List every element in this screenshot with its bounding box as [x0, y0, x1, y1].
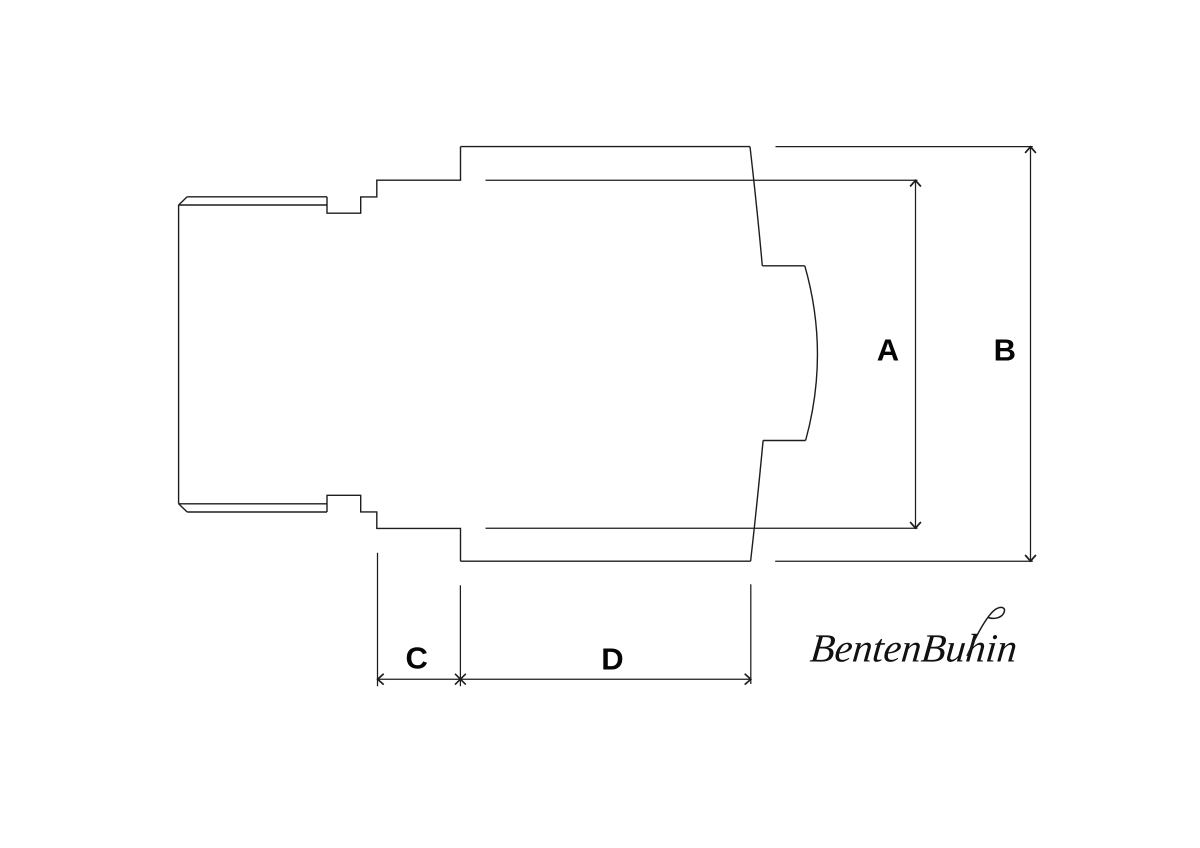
svg-text:C: C	[406, 641, 428, 676]
svg-text:A: A	[877, 333, 899, 368]
svg-text:B: B	[994, 333, 1016, 368]
svg-text:D: D	[601, 642, 623, 677]
svg-text:BentenBuhin: BentenBuhin	[808, 626, 1019, 671]
